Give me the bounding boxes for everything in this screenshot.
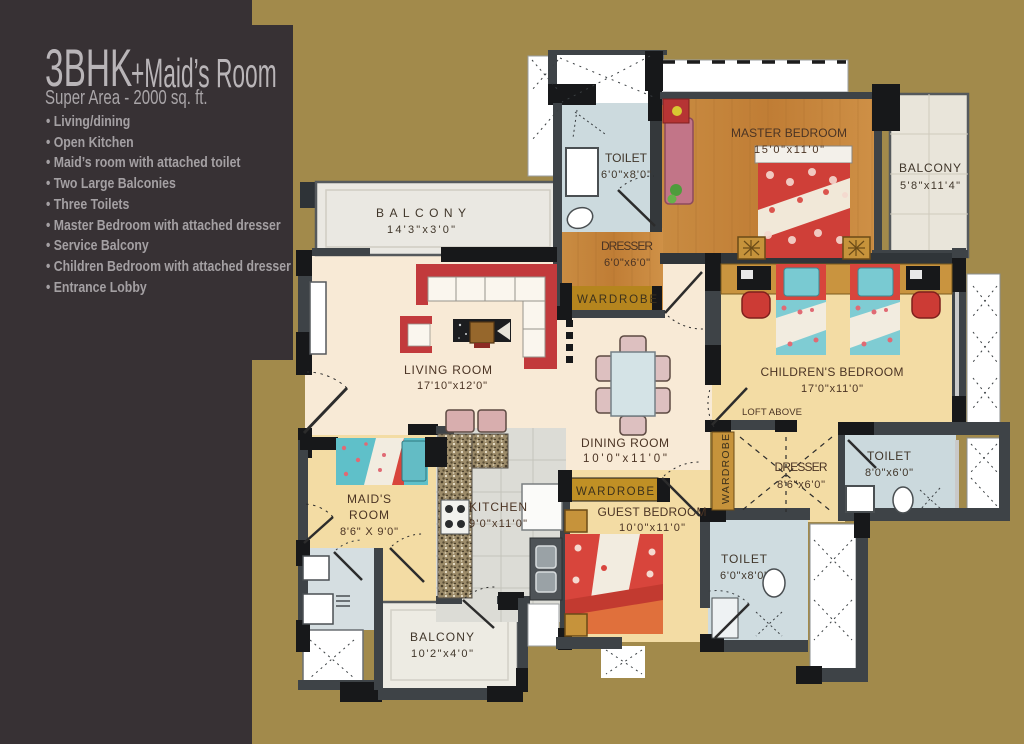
svg-text:17'10"x12'0": 17'10"x12'0" [417,380,487,392]
svg-text:LOFT ABOVE: LOFT ABOVE [742,407,802,418]
svg-text:KITCHEN: KITCHEN [469,500,527,514]
svg-text:LIVING ROOM: LIVING ROOM [404,363,492,377]
svg-text:9'0"x11'0": 9'0"x11'0" [469,518,527,530]
svg-text:ROOM: ROOM [349,508,389,522]
svg-text:8'6" X 9'0": 8'6" X 9'0" [340,526,398,538]
svg-text:6'0"x8'0": 6'0"x8'0" [720,570,768,582]
svg-text:DRESSER: DRESSER [601,239,653,253]
svg-text:15'0"x11'0": 15'0"x11'0" [754,144,824,156]
svg-text:WARDROBE: WARDROBE [720,434,732,504]
svg-text:WARDROBE: WARDROBE [576,486,654,498]
svg-text:CHILDREN'S BEDROOM: CHILDREN'S BEDROOM [761,365,904,379]
svg-text:BALCONY: BALCONY [376,206,466,220]
svg-text:MASTER BEDROOM: MASTER BEDROOM [731,126,847,140]
svg-text:5'8"x11'4": 5'8"x11'4" [900,180,960,192]
svg-text:10'0"x11'0": 10'0"x11'0" [619,522,685,534]
svg-text:8'0"x6'0": 8'0"x6'0" [865,467,913,479]
svg-text:DRESSER: DRESSER [775,460,828,474]
svg-text:6'0"x6'0": 6'0"x6'0" [604,257,650,269]
svg-text:10'0"x11'0": 10'0"x11'0" [583,453,667,465]
svg-text:17'0"x11'0": 17'0"x11'0" [801,383,863,395]
svg-text:BALCONY: BALCONY [410,630,474,644]
svg-text:TOILET: TOILET [605,151,648,165]
svg-text:MAID'S: MAID'S [347,492,391,506]
svg-text:TOILET: TOILET [721,552,768,566]
svg-text:WARDROBE: WARDROBE [577,294,657,306]
svg-text:TOILET: TOILET [867,449,912,463]
svg-text:BALCONY: BALCONY [899,161,961,175]
svg-text:6'0"x8'0": 6'0"x8'0" [601,169,651,181]
svg-text:8'6"x6'0": 8'6"x6'0" [777,479,825,491]
svg-text:DINING ROOM: DINING ROOM [581,436,669,450]
